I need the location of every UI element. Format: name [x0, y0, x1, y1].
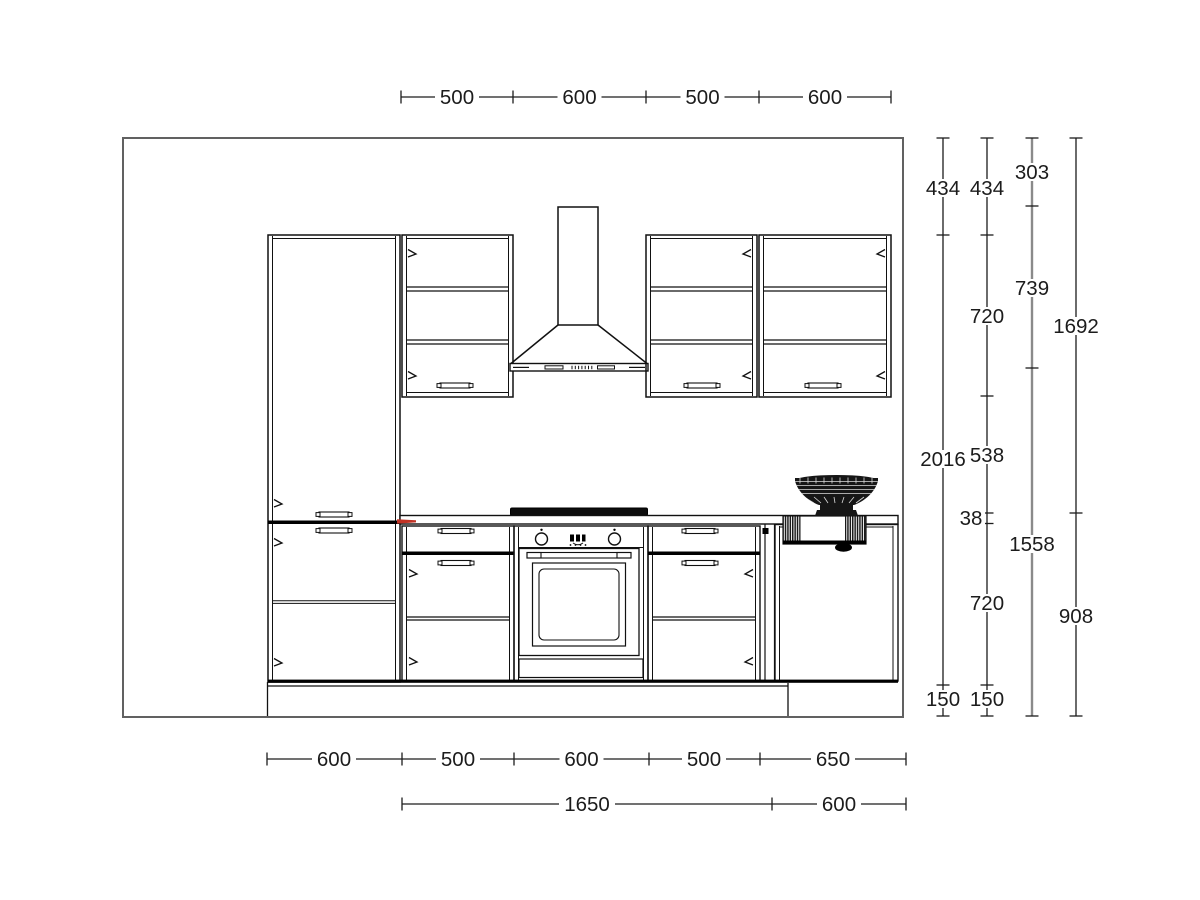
kitchen-elevation-drawing: 500 600 500 600 600 500 600 500 650 1650… — [0, 0, 1200, 900]
wall-outline — [123, 138, 903, 717]
door-open-indicator-icon — [409, 570, 417, 578]
dim-label: 2016 — [920, 448, 966, 471]
dim-label: 600 — [562, 86, 596, 109]
filler-panel — [763, 525, 775, 682]
upper-cabinet-right-2 — [759, 235, 891, 397]
oven-window-frame — [533, 563, 626, 646]
dim-label: 303 — [1015, 161, 1049, 184]
drawer-handle — [438, 561, 474, 566]
door-handle — [316, 528, 352, 533]
door-open-indicator-icon — [877, 250, 885, 258]
dim-label: 538 — [970, 444, 1004, 467]
dim-label: 500 — [687, 748, 721, 771]
door-handle — [805, 383, 841, 388]
hood-control-buttons — [572, 366, 592, 369]
base-drawer-unit-left — [402, 526, 514, 681]
dim-chain-wall: 434 2016 150 — [915, 138, 971, 716]
dim-bottom-row-inner: 1650 600 — [402, 793, 906, 816]
upper-cabinet-right-1 — [646, 235, 757, 397]
dim-label: 720 — [970, 592, 1004, 615]
dim-bottom-row-outer: 600 500 600 500 650 — [267, 748, 906, 771]
door-open-indicator-icon — [274, 500, 282, 508]
drawer-handle — [438, 529, 474, 534]
dim-label: 600 — [317, 748, 351, 771]
door-handle — [316, 512, 352, 517]
filler-hinge-mark — [763, 528, 769, 534]
dim-label: 1692 — [1053, 315, 1099, 338]
dim-chain-cabinets: 434 720 538 38 720 150 — [957, 138, 1009, 716]
dim-label: 500 — [685, 86, 719, 109]
door-open-indicator-icon — [745, 570, 753, 578]
hood-chimney — [558, 207, 598, 325]
dim-label: 600 — [822, 793, 856, 816]
door-open-indicator-icon — [408, 372, 416, 380]
upper-cabinet-left — [402, 235, 513, 397]
door-open-indicator-icon — [274, 659, 282, 667]
oven-display-arc — [573, 543, 583, 545]
cooktop — [511, 508, 648, 516]
oven-door-handle — [527, 553, 631, 559]
dim-label: 739 — [1015, 277, 1049, 300]
dim-label: 600 — [564, 748, 598, 771]
oven-control-panel — [536, 529, 621, 546]
dim-label: 38 — [960, 507, 983, 530]
dim-label: 150 — [970, 688, 1004, 711]
dim-label: 150 — [926, 688, 960, 711]
tall-cabinet-divider — [268, 521, 400, 525]
undermount-sink — [783, 516, 866, 552]
dim-label: 500 — [440, 86, 474, 109]
base-cabinet-bottom-edge — [268, 680, 898, 683]
oven-display — [570, 535, 587, 546]
oven-knob — [609, 533, 621, 545]
door-open-indicator-icon — [274, 539, 282, 547]
door-open-indicator-icon — [743, 372, 751, 380]
door-open-indicator-icon — [745, 658, 753, 666]
plinth — [268, 680, 899, 716]
drawer-handle — [682, 561, 718, 566]
dim-label: 600 — [808, 86, 842, 109]
range-hood — [510, 207, 648, 371]
drawer-handle — [682, 529, 718, 534]
sink-bowl — [794, 475, 879, 516]
dim-label: 500 — [441, 748, 475, 771]
dim-top-row: 500 600 500 600 — [401, 86, 891, 109]
door-open-indicator-icon — [409, 658, 417, 666]
oven-door — [519, 549, 639, 656]
dim-label: 650 — [816, 748, 850, 771]
dim-label: 1650 — [564, 793, 610, 816]
sink-drain — [835, 543, 852, 551]
dim-label: 720 — [970, 305, 1004, 328]
oven-unit — [514, 526, 648, 681]
dim-chain-worktop: 1692 908 — [1048, 138, 1104, 716]
base-drawer-unit-right — [648, 526, 760, 681]
oven-knob — [536, 533, 548, 545]
oven-window — [539, 569, 619, 640]
door-open-indicator-icon — [877, 372, 885, 380]
tall-cabinet — [268, 235, 400, 682]
door-open-indicator-icon — [743, 250, 751, 258]
door-open-indicator-icon — [408, 250, 416, 258]
dim-label: 434 — [926, 177, 960, 200]
dim-label: 1558 — [1009, 533, 1055, 556]
door-handle — [684, 383, 720, 388]
oven-bottom-panel — [519, 659, 643, 678]
door-handle — [437, 383, 473, 388]
dim-label: 908 — [1059, 605, 1093, 628]
dim-label: 434 — [970, 177, 1004, 200]
dim-chain-hood: 303 739 1558 — [1004, 138, 1060, 716]
